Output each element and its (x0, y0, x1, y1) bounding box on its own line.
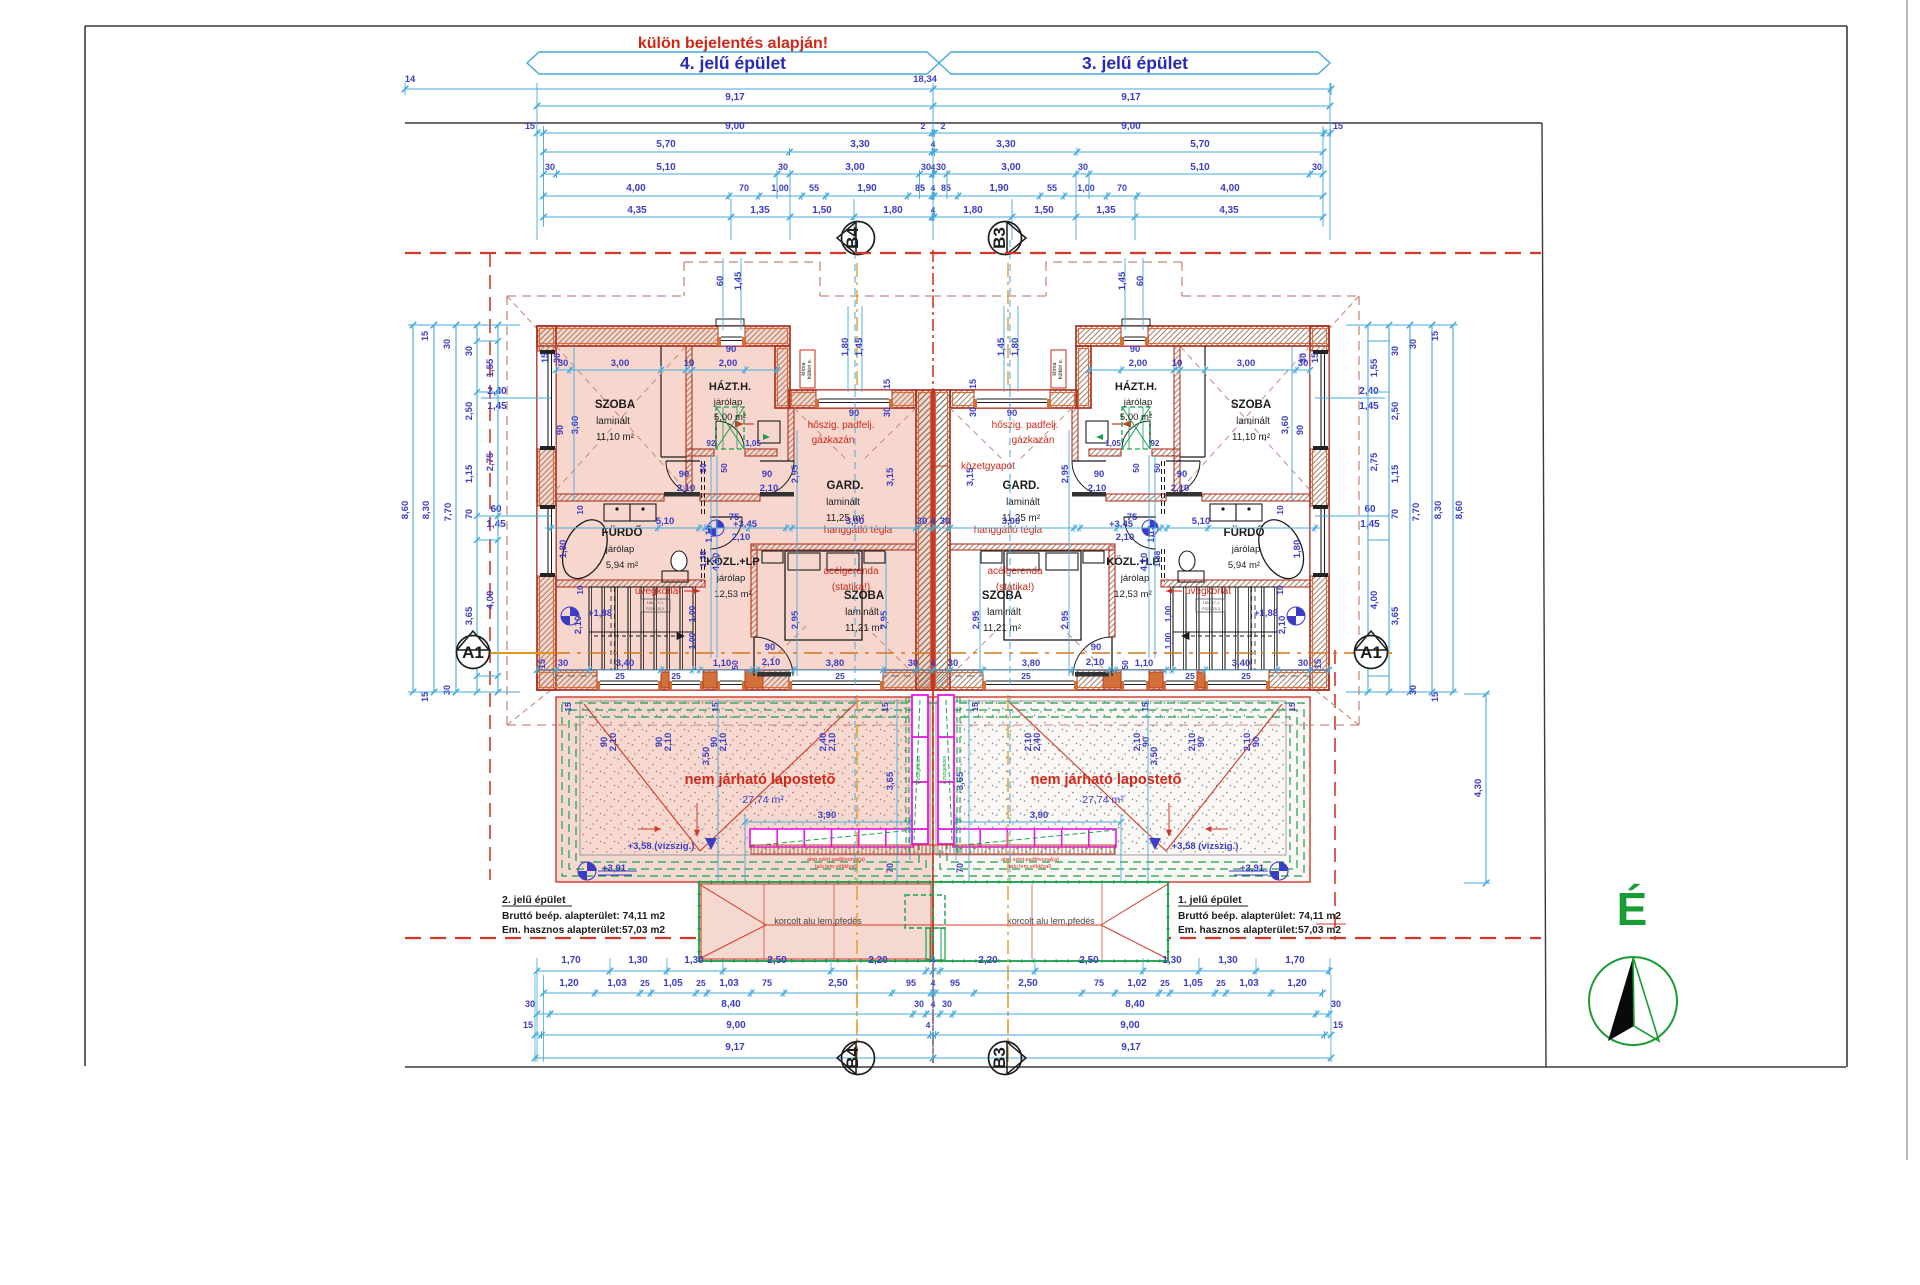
svg-text:HÁZT.H.: HÁZT.H. (1115, 380, 1157, 393)
svg-text:60: 60 (1135, 276, 1146, 287)
svg-text:60: 60 (715, 276, 726, 287)
svg-text:2,95: 2,95 (879, 610, 890, 629)
svg-text:90: 90 (1177, 469, 1188, 480)
svg-text:+3,91: +3,91 (1240, 863, 1265, 874)
svg-text:30: 30 (442, 685, 452, 695)
svg-text:Bruttó beép. alapterület: 74,1: Bruttó beép. alapterület: 74,11 m2 (502, 911, 665, 922)
svg-text:10: 10 (1172, 358, 1183, 369)
svg-text:25: 25 (640, 978, 650, 988)
svg-text:+1,88: +1,88 (1254, 608, 1278, 619)
svg-text:1,03: 1,03 (607, 978, 627, 989)
svg-text:30: 30 (936, 162, 946, 172)
svg-text:laminált: laminált (1236, 416, 1270, 427)
svg-text:15: 15 (882, 379, 892, 389)
svg-text:15: 15 (1430, 692, 1440, 702)
svg-text:30: 30 (940, 516, 951, 527)
svg-text:10: 10 (1275, 505, 1285, 515)
svg-text:4,00: 4,00 (485, 591, 496, 610)
svg-text:8,30: 8,30 (1433, 501, 1444, 520)
svg-text:1,50: 1,50 (1034, 205, 1054, 216)
svg-text:2: 2 (921, 121, 926, 131)
svg-text:2,10: 2,10 (1023, 733, 1034, 752)
svg-text:30: 30 (917, 516, 928, 527)
svg-text:3,00: 3,00 (845, 162, 865, 173)
svg-text:15: 15 (525, 121, 535, 131)
svg-text:2,10: 2,10 (1242, 733, 1253, 752)
svg-text:B3: B3 (990, 1047, 1009, 1069)
svg-text:15: 15 (1313, 659, 1323, 669)
svg-text:É: É (1617, 883, 1648, 935)
svg-text:gázkazán: gázkazán (812, 435, 855, 446)
svg-text:85: 85 (941, 183, 951, 193)
svg-text:2,75: 2,75 (1369, 452, 1380, 471)
svg-text:5,10: 5,10 (656, 516, 675, 527)
svg-text:3,80: 3,80 (826, 658, 845, 669)
svg-text:1,80: 1,80 (558, 540, 569, 559)
svg-text:korcolt alu lem.pfedés: korcolt alu lem.pfedés (1007, 916, 1095, 926)
svg-text:30: 30 (545, 162, 555, 172)
svg-text:1,20: 1,20 (559, 978, 579, 989)
svg-text:90: 90 (679, 469, 690, 480)
svg-text:2,50: 2,50 (1018, 978, 1038, 989)
svg-text:30: 30 (558, 658, 569, 669)
svg-text:1,45: 1,45 (733, 271, 744, 290)
svg-text:hőszig. padfelj.: hőszig. padfelj. (992, 420, 1059, 431)
svg-text:3. jelű épület: 3. jelű épület (1082, 53, 1188, 73)
svg-text:15: 15 (537, 659, 547, 669)
svg-text:1,80: 1,80 (963, 205, 983, 216)
svg-text:90: 90 (555, 425, 565, 435)
svg-text:55: 55 (1047, 183, 1057, 193)
svg-text:1,90: 1,90 (989, 183, 1009, 194)
svg-text:1,00: 1,00 (1163, 605, 1173, 622)
svg-text:1,05: 1,05 (745, 439, 761, 448)
svg-text:9,17: 9,17 (1121, 1042, 1141, 1053)
svg-text:70: 70 (739, 183, 749, 193)
svg-text:1,80: 1,80 (1010, 338, 1021, 357)
svg-text:60: 60 (1364, 504, 1376, 515)
svg-text:70: 70 (464, 509, 474, 519)
svg-text:4,35: 4,35 (627, 205, 647, 216)
svg-text:SZOBA: SZOBA (1231, 399, 1271, 411)
svg-text:3,50: 3,50 (1149, 747, 1160, 766)
svg-text:Bruttó beép. alapterület: 74,1: Bruttó beép. alapterület: 74,11 m2 (1178, 911, 1341, 922)
svg-text:F520 28,3: F520 28,3 (1202, 606, 1221, 611)
svg-text:14: 14 (405, 74, 416, 85)
svg-text:1,80: 1,80 (840, 338, 851, 357)
svg-text:30: 30 (948, 658, 959, 669)
svg-text:2: 2 (941, 121, 946, 131)
svg-text:25: 25 (1160, 978, 1170, 988)
svg-text:kültéri e.: kültéri e. (807, 358, 813, 379)
svg-text:15: 15 (968, 379, 978, 389)
svg-text:15: 15 (523, 1020, 533, 1030)
svg-text:2,10: 2,10 (677, 483, 696, 494)
svg-text:30: 30 (778, 162, 788, 172)
svg-text:1,00: 1,00 (687, 605, 697, 622)
svg-text:(statika!): (statika!) (832, 582, 870, 593)
svg-text:90: 90 (1007, 408, 1018, 419)
svg-text:15: 15 (1287, 702, 1297, 712)
svg-text:12,53 m²: 12,53 m² (714, 589, 752, 600)
svg-text:18,34: 18,34 (913, 74, 937, 85)
svg-text:11,10 m²: 11,10 m² (596, 432, 635, 443)
svg-text:3,40: 3,40 (1232, 658, 1251, 669)
svg-text:30: 30 (908, 658, 919, 669)
svg-text:50: 50 (698, 463, 708, 473)
svg-text:2,10: 2,10 (827, 733, 838, 752)
svg-text:2,10: 2,10 (732, 532, 751, 543)
svg-text:3,60: 3,60 (1280, 416, 1291, 435)
svg-text:2,10: 2,10 (608, 733, 619, 752)
svg-text:18M 17,1: 18M 17,1 (1203, 600, 1220, 605)
svg-text:(statika!): (statika!) (996, 582, 1034, 593)
svg-text:2,40: 2,40 (487, 386, 507, 397)
svg-text:30: 30 (552, 353, 562, 363)
svg-text:2,10: 2,10 (1116, 532, 1135, 543)
svg-text:hőszig. padfelj.: hőszig. padfelj. (808, 420, 875, 431)
svg-text:2,75: 2,75 (485, 452, 496, 471)
svg-text:75: 75 (1127, 512, 1138, 523)
svg-text:90: 90 (765, 642, 776, 653)
svg-text:85: 85 (915, 183, 925, 193)
svg-text:30: 30 (1298, 658, 1309, 669)
svg-text:3,30: 3,30 (850, 139, 870, 150)
svg-text:+3,58 (vízszig.): +3,58 (vízszig.) (1172, 841, 1239, 852)
svg-text:5,94 m²: 5,94 m² (606, 560, 638, 571)
svg-text:(alu lem.vébklyal): (alu lem.vébklyal) (815, 864, 858, 870)
svg-text:30: 30 (1078, 162, 1088, 172)
svg-text:27,74 m²: 27,74 m² (742, 794, 784, 806)
svg-text:18M 17,1: 18M 17,1 (647, 600, 664, 605)
svg-text:4,10: 4,10 (1139, 553, 1150, 572)
svg-text:2,50: 2,50 (1390, 402, 1401, 421)
svg-text:3,00: 3,00 (1237, 358, 1256, 369)
svg-text:3,90: 3,90 (818, 810, 837, 821)
svg-text:+3,91: +3,91 (602, 863, 627, 874)
svg-text:8,60: 8,60 (400, 501, 411, 520)
svg-text:acélgerenda: acélgerenda (987, 566, 1042, 577)
svg-text:3,65: 3,65 (885, 771, 896, 790)
svg-text:B4: B4 (843, 227, 862, 249)
svg-text:B3: B3 (990, 227, 1009, 249)
svg-text:90: 90 (762, 469, 773, 480)
svg-text:járólap: járólap (1231, 544, 1261, 555)
svg-text:1,05: 1,05 (1105, 439, 1121, 448)
svg-text:HÁZT.H.: HÁZT.H. (709, 380, 751, 393)
svg-text:1,45: 1,45 (1360, 519, 1380, 530)
svg-text:Em. hasznos alapterület:57,03: Em. hasznos alapterület:57,03 m2 (1178, 925, 1341, 936)
svg-text:1,38: 1,38 (698, 550, 708, 567)
svg-text:járólap: járólap (1123, 397, 1153, 408)
svg-text:4,30: 4,30 (1473, 779, 1484, 798)
svg-text:üvegkorlát: üvegkorlát (635, 586, 681, 597)
svg-text:nem járható lapostető: nem járható lapostető (1031, 772, 1182, 788)
svg-text:1,30: 1,30 (1162, 955, 1182, 966)
svg-text:7,70: 7,70 (443, 503, 454, 522)
svg-text:7,70: 7,70 (1411, 503, 1422, 522)
svg-text:30: 30 (1390, 346, 1400, 356)
svg-text:1,03: 1,03 (719, 978, 739, 989)
svg-text:30: 30 (942, 999, 952, 1009)
svg-text:2,50: 2,50 (1079, 955, 1099, 966)
svg-text:B4: B4 (843, 1047, 862, 1069)
svg-text:1,35: 1,35 (750, 205, 770, 216)
svg-text:4,35: 4,35 (1219, 205, 1239, 216)
svg-text:4: 4 (926, 1020, 931, 1030)
svg-text:90: 90 (1094, 469, 1105, 480)
svg-text:járólap: járólap (716, 573, 746, 584)
svg-text:30: 30 (1298, 353, 1308, 363)
svg-text:25: 25 (1185, 671, 1195, 681)
svg-text:70: 70 (885, 863, 895, 873)
svg-text:15: 15 (710, 702, 720, 712)
svg-text:15: 15 (1310, 353, 1320, 363)
svg-text:11,21 m²: 11,21 m² (845, 623, 884, 634)
svg-text:11,21 m²: 11,21 m² (983, 623, 1022, 634)
svg-text:4,10: 4,10 (711, 553, 722, 572)
svg-text:2,10: 2,10 (1277, 616, 1288, 635)
svg-text:SZOBA: SZOBA (595, 399, 635, 411)
svg-text:2,10: 2,10 (1187, 733, 1198, 752)
svg-text:3,90: 3,90 (1030, 810, 1049, 821)
svg-text:3,30: 3,30 (996, 139, 1016, 150)
svg-text:75: 75 (729, 512, 740, 523)
svg-text:15: 15 (1333, 121, 1343, 131)
svg-text:30: 30 (464, 346, 474, 356)
svg-text:1,35: 1,35 (1096, 205, 1116, 216)
svg-text:12,53 m²: 12,53 m² (1114, 589, 1152, 600)
svg-text:+3,58 (vízszig.): +3,58 (vízszig.) (628, 841, 695, 852)
svg-text:15: 15 (420, 692, 430, 702)
svg-text:1,70: 1,70 (561, 955, 581, 966)
svg-text:1,50: 1,50 (812, 205, 832, 216)
svg-text:1,80: 1,80 (1292, 540, 1303, 559)
svg-text:25: 25 (1021, 671, 1031, 681)
svg-text:15: 15 (880, 702, 890, 712)
svg-text:laminált: laminált (596, 416, 630, 427)
svg-text:50: 50 (730, 660, 740, 670)
svg-text:A1: A1 (462, 643, 484, 662)
svg-text:3,40: 3,40 (616, 658, 635, 669)
svg-text:11,10 m²: 11,10 m² (1232, 432, 1271, 443)
svg-text:75: 75 (762, 978, 772, 988)
svg-text:Em. hasznos alapterület:57,03: Em. hasznos alapterület:57,03 m2 (502, 925, 665, 936)
svg-text:25: 25 (1216, 978, 1226, 988)
svg-text:15: 15 (1430, 331, 1440, 341)
svg-text:GARD.: GARD. (1002, 480, 1039, 492)
svg-text:30: 30 (1312, 162, 1322, 172)
svg-text:15: 15 (970, 702, 980, 712)
svg-text:70: 70 (955, 863, 965, 873)
svg-text:1,30: 1,30 (628, 955, 648, 966)
svg-text:30: 30 (914, 999, 924, 1009)
svg-text:2,20: 2,20 (978, 955, 998, 966)
svg-text:1,03: 1,03 (1239, 978, 1259, 989)
svg-text:92: 92 (1151, 439, 1160, 448)
svg-text:2,10: 2,10 (762, 657, 781, 668)
svg-text:2,95: 2,95 (790, 610, 801, 629)
svg-text:2,10: 2,10 (573, 616, 584, 635)
svg-text:8,40: 8,40 (721, 999, 741, 1010)
svg-text:laminált: laminált (845, 607, 879, 618)
svg-text:25: 25 (615, 671, 625, 681)
svg-text:külön bejelentés alapján!: külön bejelentés alapján! (638, 35, 828, 52)
svg-text:8,40: 8,40 (1125, 999, 1145, 1010)
svg-text:acélgerenda: acélgerenda (823, 566, 878, 577)
svg-text:25: 25 (1241, 671, 1251, 681)
svg-text:70: 70 (1390, 509, 1400, 519)
svg-text:75: 75 (1094, 978, 1104, 988)
svg-text:90: 90 (1295, 425, 1305, 435)
svg-text:2,20: 2,20 (868, 955, 888, 966)
svg-text:1,10: 1,10 (713, 658, 732, 669)
svg-text:laminált: laminált (1006, 497, 1040, 508)
svg-text:1,45: 1,45 (1117, 271, 1128, 290)
svg-text:2,40: 2,40 (1359, 386, 1379, 397)
svg-text:5,10: 5,10 (1192, 516, 1211, 527)
svg-text:95: 95 (950, 978, 960, 988)
svg-text:3,65: 3,65 (464, 606, 475, 625)
svg-text:9,17: 9,17 (725, 92, 745, 103)
svg-text:92: 92 (707, 439, 716, 448)
svg-text:30: 30 (1331, 999, 1341, 1009)
svg-text:1,15: 1,15 (1390, 464, 1401, 483)
svg-text:gázkazán: gázkazán (1012, 435, 1055, 446)
svg-text:30: 30 (882, 407, 892, 417)
svg-text:25: 25 (696, 978, 706, 988)
svg-text:9,00: 9,00 (725, 121, 745, 132)
svg-text:8,60: 8,60 (1454, 501, 1465, 520)
svg-text:1,30: 1,30 (684, 955, 704, 966)
svg-text:3,00: 3,00 (1001, 162, 1021, 173)
svg-text:25: 25 (671, 671, 681, 681)
svg-text:4: 4 (930, 516, 936, 527)
svg-text:1,38: 1,38 (1152, 550, 1162, 567)
svg-text:1,45: 1,45 (854, 337, 865, 356)
svg-text:2,10: 2,10 (760, 483, 779, 494)
svg-text:1,10: 1,10 (1135, 658, 1154, 669)
svg-text:1,00: 1,00 (1163, 632, 1173, 649)
svg-text:2,10: 2,10 (1132, 733, 1143, 752)
svg-text:4,00: 4,00 (626, 183, 646, 194)
svg-text:1,05: 1,05 (1183, 978, 1203, 989)
svg-text:30: 30 (1408, 339, 1418, 349)
svg-text:4,00: 4,00 (1220, 183, 1240, 194)
svg-text:2,10: 2,10 (663, 733, 674, 752)
svg-text:10: 10 (1275, 585, 1285, 595)
svg-text:3,65: 3,65 (1390, 606, 1401, 625)
svg-text:járólap: járólap (713, 397, 743, 408)
svg-text:járólap: járólap (1120, 573, 1150, 584)
svg-text:5,70: 5,70 (656, 139, 676, 150)
svg-text:5,10: 5,10 (656, 162, 676, 173)
svg-text:10: 10 (575, 585, 585, 595)
svg-text:1,00: 1,00 (771, 183, 789, 193)
svg-text:járólap: járólap (605, 544, 635, 555)
svg-text:1. jelű épület: 1. jelű épület (1178, 894, 1242, 906)
svg-text:4: 4 (931, 659, 936, 668)
svg-text:3,50: 3,50 (701, 747, 712, 766)
svg-text:25: 25 (835, 671, 845, 681)
svg-text:1,20: 1,20 (1287, 978, 1307, 989)
svg-text:1,00: 1,00 (1077, 183, 1095, 193)
svg-text:2,10: 2,10 (718, 733, 729, 752)
svg-text:5,00 m²: 5,00 m² (1120, 412, 1152, 423)
svg-text:9,00: 9,00 (1120, 1020, 1140, 1031)
svg-text:1,45: 1,45 (486, 519, 506, 530)
svg-text:15: 15 (540, 353, 550, 363)
svg-text:15: 15 (1140, 702, 1150, 712)
svg-text:1,70: 1,70 (1285, 955, 1305, 966)
svg-text:1,00: 1,00 (687, 632, 697, 649)
svg-text:90: 90 (1130, 344, 1141, 355)
svg-text:1,80: 1,80 (883, 205, 903, 216)
svg-text:1,05: 1,05 (663, 978, 683, 989)
svg-text:90: 90 (849, 408, 860, 419)
svg-text:F520 28,3: F520 28,3 (646, 606, 665, 611)
svg-text:2. jelű épület: 2. jelű épület (502, 894, 566, 906)
svg-text:2,10: 2,10 (1086, 657, 1105, 668)
svg-text:korcolt alu lem.pfedés: korcolt alu lem.pfedés (774, 916, 862, 926)
svg-text:3,60: 3,60 (570, 416, 581, 435)
svg-text:2,50: 2,50 (767, 955, 787, 966)
svg-text:laminált: laminált (987, 607, 1021, 618)
svg-text:1,90: 1,90 (857, 183, 877, 194)
svg-text:55: 55 (809, 183, 819, 193)
svg-text:2,00: 2,00 (719, 358, 738, 369)
svg-text:30: 30 (1408, 685, 1418, 695)
svg-text:50: 50 (1120, 660, 1130, 670)
svg-text:1,02: 1,02 (1127, 978, 1147, 989)
svg-text:30: 30 (921, 162, 931, 172)
svg-text:2,00: 2,00 (1129, 358, 1148, 369)
svg-text:3,00: 3,00 (611, 358, 630, 369)
svg-text:5,00 m²: 5,00 m² (714, 412, 746, 423)
svg-text:kültéri e.: kültéri e. (1058, 358, 1064, 379)
svg-text:95: 95 (906, 978, 916, 988)
svg-text:15: 15 (1333, 1020, 1343, 1030)
svg-text:27,74 m²: 27,74 m² (1082, 794, 1124, 806)
svg-text:9,17: 9,17 (725, 1042, 745, 1053)
svg-text:(alu lem.vébklyal): (alu lem.vébklyal) (1009, 864, 1052, 870)
svg-text:vízszigetelés: vízszigetelés (916, 755, 922, 784)
svg-text:9,17: 9,17 (1121, 92, 1141, 103)
svg-text:9,00: 9,00 (726, 1020, 746, 1031)
svg-text:90: 90 (1091, 642, 1102, 653)
svg-text:2,50: 2,50 (464, 402, 475, 421)
svg-text:8,30: 8,30 (421, 501, 432, 520)
svg-text:vízszigetelés: vízszigetelés (942, 755, 948, 784)
svg-text:50: 50 (1152, 463, 1162, 473)
svg-text:15: 15 (420, 331, 430, 341)
svg-text:2,95: 2,95 (790, 464, 801, 483)
svg-text:5,94 m²: 5,94 m² (1228, 560, 1260, 571)
svg-text:30: 30 (968, 407, 978, 417)
svg-text:+1,88: +1,88 (588, 608, 612, 619)
svg-text:1,55: 1,55 (1369, 358, 1380, 377)
svg-text:közetgyapot: közetgyapot (961, 461, 1015, 472)
svg-text:15: 15 (563, 702, 573, 712)
svg-text:1,45: 1,45 (996, 337, 1007, 356)
svg-text:A1: A1 (1360, 643, 1382, 662)
svg-text:1,30: 1,30 (1218, 955, 1238, 966)
svg-text:5,10: 5,10 (1190, 162, 1210, 173)
svg-text:3,15: 3,15 (885, 467, 896, 486)
svg-text:30: 30 (525, 999, 535, 1009)
svg-text:50: 50 (1131, 463, 1141, 473)
svg-text:9,00: 9,00 (1121, 121, 1141, 132)
